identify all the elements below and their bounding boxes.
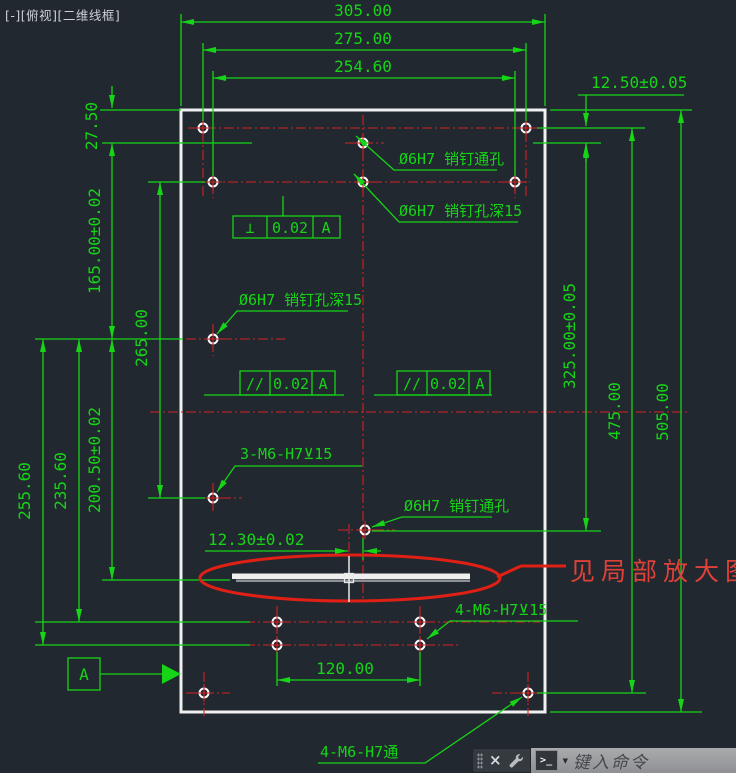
slot-bar	[232, 574, 470, 580]
dimension-text[interactable]: 12.30±0.02	[208, 530, 304, 549]
tolerance-value: 0.02	[273, 375, 309, 393]
command-prompt-icon[interactable]: >_	[535, 750, 558, 771]
command-input[interactable]: >_ ▼ 键入命令	[531, 748, 736, 773]
tolerance-symbol: //	[246, 375, 264, 393]
tolerance-datum: A	[321, 219, 330, 237]
tolerance-frame-parallelism-left[interactable]: // 0.02 A	[204, 371, 344, 395]
leader-thread-3[interactable]: 3-M6-H7⊻15	[217, 445, 362, 492]
hole	[354, 173, 372, 191]
dimension-text[interactable]: 475.00	[605, 382, 624, 440]
wrench-icon[interactable]	[508, 753, 524, 769]
dimension-text[interactable]: 165.00±0.02	[85, 188, 104, 294]
tolerance-datum: A	[318, 375, 327, 393]
dimension-text[interactable]: 255.60	[15, 462, 34, 520]
dimension-left-top-offset[interactable]: 27.50	[82, 86, 252, 150]
leader-pin-depth-upper[interactable]: Ø6H7 销钉孔深15	[354, 174, 522, 222]
dimension-text[interactable]: 275.00	[334, 29, 392, 48]
viewport-minimize-control[interactable]: [-]	[5, 8, 21, 23]
dimension-right-offset[interactable]: 12.50±0.05	[578, 73, 687, 162]
dimension-text[interactable]: 505.00	[653, 383, 672, 441]
command-placeholder: 键入命令	[573, 748, 649, 773]
dimension-text[interactable]: 120.00	[316, 659, 374, 678]
detail-leader	[497, 566, 566, 577]
hole	[194, 119, 212, 137]
hole	[268, 613, 286, 631]
leader-pin-through-top[interactable]: Ø6H7 销钉通孔	[356, 136, 504, 170]
hole	[356, 521, 374, 539]
datum-triangle-icon	[162, 664, 181, 684]
hole	[195, 684, 213, 702]
drawing-canvas[interactable]: 305.00 275.00 254.60 12.50±0.05 27.50	[0, 0, 736, 773]
hole	[204, 330, 222, 348]
viewport-controls: [-][俯视][二维线框]	[5, 5, 120, 24]
hole	[517, 119, 535, 137]
viewport-view-control[interactable]: [俯视]	[21, 8, 58, 23]
leader-pin-through-bottom[interactable]: Ø6H7 销钉通孔	[372, 497, 509, 527]
datum-flag[interactable]: A	[68, 658, 181, 690]
detail-note-text[interactable]: 见局部放大图	[570, 557, 736, 586]
tolerance-value: 0.02	[272, 219, 308, 237]
viewport-visual-style-control[interactable]: [二维线框]	[58, 8, 121, 23]
hole	[204, 489, 222, 507]
leader-text[interactable]: 4-M6-H7⊻15	[455, 601, 547, 619]
dimension-text[interactable]: 235.60	[51, 452, 70, 510]
chevron-down-icon[interactable]: ▼	[563, 757, 568, 765]
leader-thread-4[interactable]: 4-M6-H7⊻15	[427, 601, 578, 639]
dimension-left-pin-span[interactable]: 165.00±0.02	[85, 143, 112, 339]
leader-text[interactable]: 4-M6-H7通	[320, 743, 398, 761]
leader-text[interactable]: Ø6H7 销钉孔深15	[399, 202, 522, 220]
dimension-right-corner-span[interactable]: 475.00	[537, 128, 646, 693]
dimension-text[interactable]: 27.50	[82, 102, 101, 150]
dimension-text[interactable]: 265.00	[132, 309, 151, 367]
detail-slot[interactable]	[232, 574, 470, 583]
tolerance-value: 0.02	[430, 375, 466, 393]
dimension-text[interactable]: 12.50±0.05	[591, 73, 687, 92]
command-toolbar: ×	[472, 748, 531, 773]
leader-pin-depth-mid[interactable]: Ø6H7 销钉孔深15	[217, 291, 362, 334]
dimension-width-overall[interactable]: 305.00	[181, 1, 545, 106]
hole	[268, 636, 286, 654]
leader-text[interactable]: Ø6H7 销钉通孔	[399, 150, 504, 168]
hole	[411, 636, 429, 654]
command-bar: × >_ ▼ 键入命令	[472, 748, 736, 773]
hole	[519, 684, 537, 702]
tolerance-symbol: //	[403, 375, 421, 393]
dimension-left-mid-span[interactable]: 265.00	[132, 182, 205, 498]
dimension-text[interactable]: 200.50±0.02	[85, 407, 104, 513]
dimension-height-overall[interactable]: 505.00	[550, 110, 702, 712]
datum-letter: A	[79, 665, 89, 684]
tolerance-frame-parallelism-right[interactable]: // 0.02 A	[374, 371, 492, 395]
tolerance-frame-perpendicularity[interactable]: ⊥ 0.02 A	[233, 196, 340, 238]
leader-text[interactable]: Ø6H7 销钉孔深15	[239, 291, 362, 309]
leader-text[interactable]: Ø6H7 销钉通孔	[404, 497, 509, 515]
close-icon[interactable]: ×	[487, 753, 504, 768]
drag-grip-icon[interactable]	[477, 753, 483, 769]
autocad-viewport[interactable]: [-][俯视][二维线框]	[0, 0, 736, 773]
leader-text[interactable]: 3-M6-H7⊻15	[240, 445, 332, 463]
tolerance-symbol: ⊥	[245, 219, 254, 237]
hole	[411, 613, 429, 631]
dimension-text[interactable]: 254.60	[334, 57, 392, 76]
dimension-text[interactable]: 305.00	[334, 1, 392, 20]
tolerance-datum: A	[475, 375, 484, 393]
dimension-bottom-hole-pitch[interactable]: 120.00	[277, 652, 420, 686]
dimension-text[interactable]: 325.00±0.05	[560, 283, 579, 389]
